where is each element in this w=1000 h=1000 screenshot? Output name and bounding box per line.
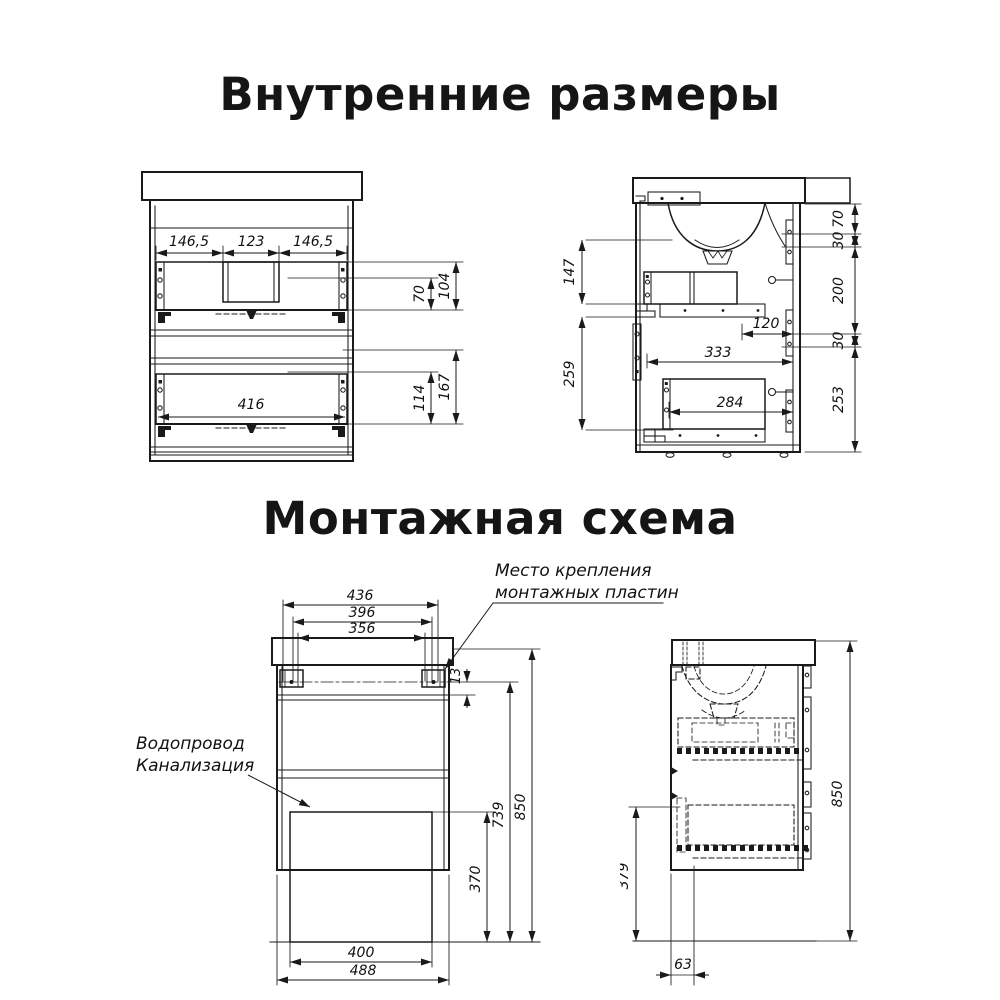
dim-front2-height: 114 [412, 385, 428, 412]
dim-chain-5: 253 [831, 386, 847, 413]
dimension-total-height: 850 [815, 641, 857, 941]
dim-width-mid: 396 [349, 605, 376, 621]
dim-plate-offset: 13 [449, 668, 464, 685]
dim-chain-3: 200 [831, 277, 847, 304]
dim-hatch-width: 400 [348, 945, 375, 961]
dim-total-height: 850 [830, 781, 846, 808]
dimension-back-offset: 63 [656, 866, 709, 985]
front-view-drawing: 146,5 123 146,5 416 70 104 114 167 [128, 162, 464, 468]
mounting-side-drawing: 850 379 63 [620, 600, 880, 995]
dim-plinth-height: 379 [620, 863, 632, 890]
wall-bracket [805, 178, 850, 203]
dimension-right-chain: 70 30 200 30 253 [782, 204, 861, 452]
drawer-knob [769, 389, 776, 396]
dim-total2-height: 167 [437, 374, 453, 401]
mounting-plate-right [422, 670, 445, 687]
dimension-left-heights: 147 259 [562, 240, 673, 430]
wall-rails [803, 666, 811, 859]
label-plumbing-line1: Водопровод [136, 734, 245, 754]
dimension-depths: 120 333 284 [647, 316, 793, 418]
cabinet-outline [270, 638, 540, 942]
dim-chain-2: 30 [831, 232, 847, 250]
dim-total-height: 850 [513, 794, 529, 821]
drawer-upper-hidden [678, 718, 794, 747]
cabinet-outline [633, 178, 850, 457]
dim-width-inner: 356 [349, 621, 376, 637]
dim-hatch-height: 370 [468, 866, 484, 893]
dim-width-left: 146,5 [169, 234, 209, 250]
dim-width-center: 123 [238, 234, 265, 250]
plumbing-leader-line [248, 775, 310, 807]
hidden-internals [671, 642, 808, 858]
sink-bowl [668, 203, 785, 264]
dim-back-offset: 63 [674, 957, 692, 973]
dimension-plate-offset: 13 [447, 668, 518, 708]
side-view-drawing: 147 259 70 30 200 30 253 120 333 284 [560, 160, 910, 470]
dim-cabinet-width: 488 [350, 963, 377, 979]
sink-hidden-outline [682, 666, 766, 704]
cabinet-outline [633, 640, 816, 941]
page-title-internal: Внутренние размеры [0, 68, 1000, 121]
dimension-drawer-width: 416 [158, 397, 345, 417]
dim-lower-height: 259 [562, 361, 578, 388]
dim-depth-drawer1: 333 [705, 345, 732, 361]
mounting-plate-left [280, 670, 303, 687]
dim-depth-small: 120 [753, 316, 780, 332]
dimension-right-heights: 70 104 114 167 [288, 262, 463, 424]
dimension-top-widths: 436 396 356 [283, 588, 438, 681]
dim-width-right: 146,5 [293, 234, 333, 250]
page-title-mounting: Монтажная схема [0, 492, 1000, 545]
dim-depth-drawer2: 284 [717, 395, 744, 411]
dim-chain-1: 70 [831, 210, 847, 228]
siphon-cutout [223, 262, 279, 302]
dim-plate-height: 739 [491, 802, 507, 829]
label-plumbing-line2: Канализация [136, 756, 254, 776]
dim-sink-height: 147 [562, 259, 578, 286]
dim-chain-4: 30 [831, 332, 847, 350]
dim-total1-height: 104 [437, 273, 453, 300]
hatch-plumbing-zone [290, 812, 432, 942]
dim-front1-height: 70 [412, 285, 428, 303]
dim-width-outer: 436 [347, 588, 374, 604]
drawer-knob [769, 277, 776, 284]
dimension-top-widths: 146,5 123 146,5 [156, 234, 347, 300]
dimension-bottom-widths: 400 488 [277, 875, 449, 985]
mounting-front-drawing: Место крепления монтажных пластин Водопр… [130, 555, 690, 1000]
drawer-upper-side [636, 272, 793, 317]
drawer-lower-hidden [688, 805, 794, 845]
drawer-lower-side [633, 324, 793, 442]
label-plates-line1: Место крепления [495, 561, 652, 581]
dim-drawer-width: 416 [238, 397, 265, 413]
sink-drain [703, 251, 732, 264]
drawing-sheet: Внутренние размеры Монтажная схема [0, 0, 1000, 1000]
drawer-upper [156, 262, 347, 323]
back-rails [786, 220, 793, 432]
